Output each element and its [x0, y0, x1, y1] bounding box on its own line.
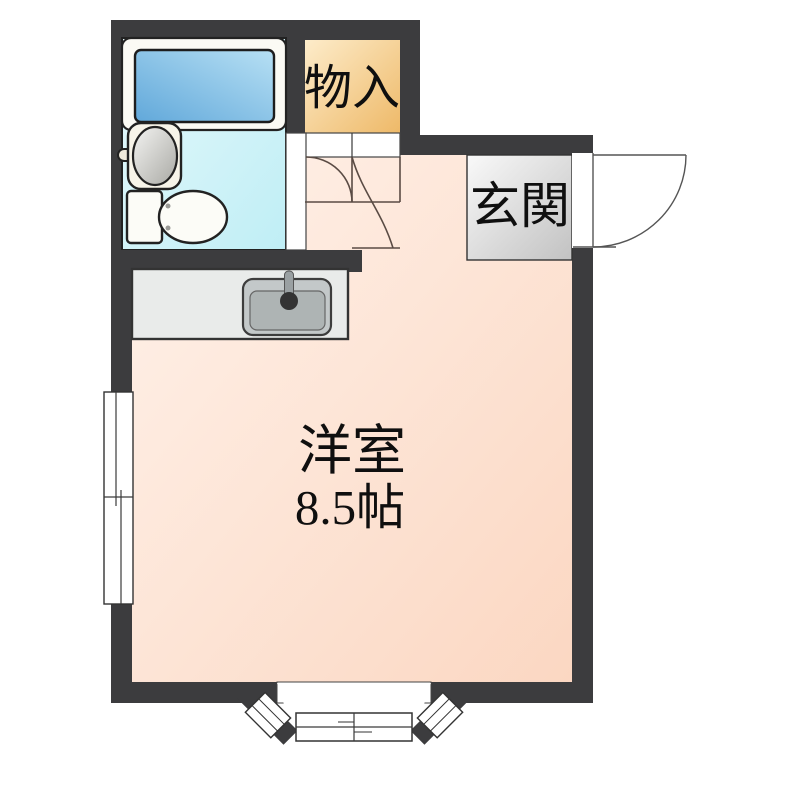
- kitchen-drain: [280, 292, 298, 310]
- side-window: [104, 392, 133, 604]
- side-window-frame: [104, 392, 133, 604]
- toilet-hinge-dot: [166, 204, 171, 209]
- toilet-tank: [127, 191, 162, 243]
- main-room-size-label: 8.5帖: [295, 480, 405, 535]
- washbasin-bowl: [133, 127, 177, 185]
- floorplan-svg: 物入 玄関 洋室 8.5帖: [0, 0, 800, 800]
- entrance-label: 玄関: [470, 178, 570, 234]
- toilet-bowl: [159, 191, 227, 243]
- kitchen: [132, 269, 348, 339]
- bathroom: [118, 38, 286, 250]
- closet-label: 物入: [304, 62, 400, 115]
- bathtub: [135, 50, 274, 122]
- floorplan-page: 物入 玄関 洋室 8.5帖: [0, 0, 800, 800]
- bathroom-door: [286, 133, 306, 250]
- main-room-label: 洋室: [298, 421, 406, 481]
- entrance-door-opening: [572, 153, 593, 248]
- toilet-hinge-dot: [166, 226, 171, 231]
